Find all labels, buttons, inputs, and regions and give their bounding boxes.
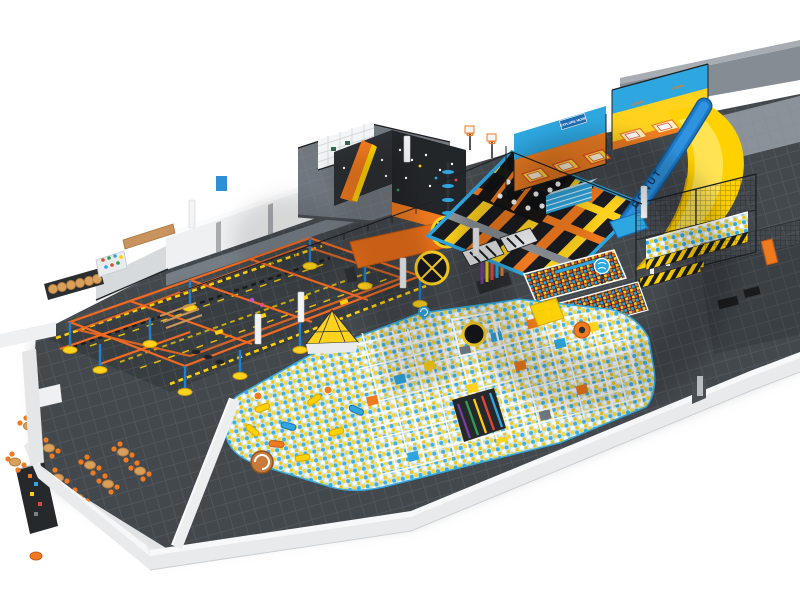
indoor-playground-render: EXPLORE MORE URBAN URBAN	[0, 0, 800, 600]
facility-3d-render: EXPLORE MORE URBAN URBAN	[0, 0, 800, 600]
hanging-banner	[216, 176, 227, 191]
stray-seat	[30, 552, 42, 560]
back-rooms	[700, 220, 800, 354]
vortex-disc	[418, 306, 430, 318]
spiral-slide	[251, 451, 273, 473]
